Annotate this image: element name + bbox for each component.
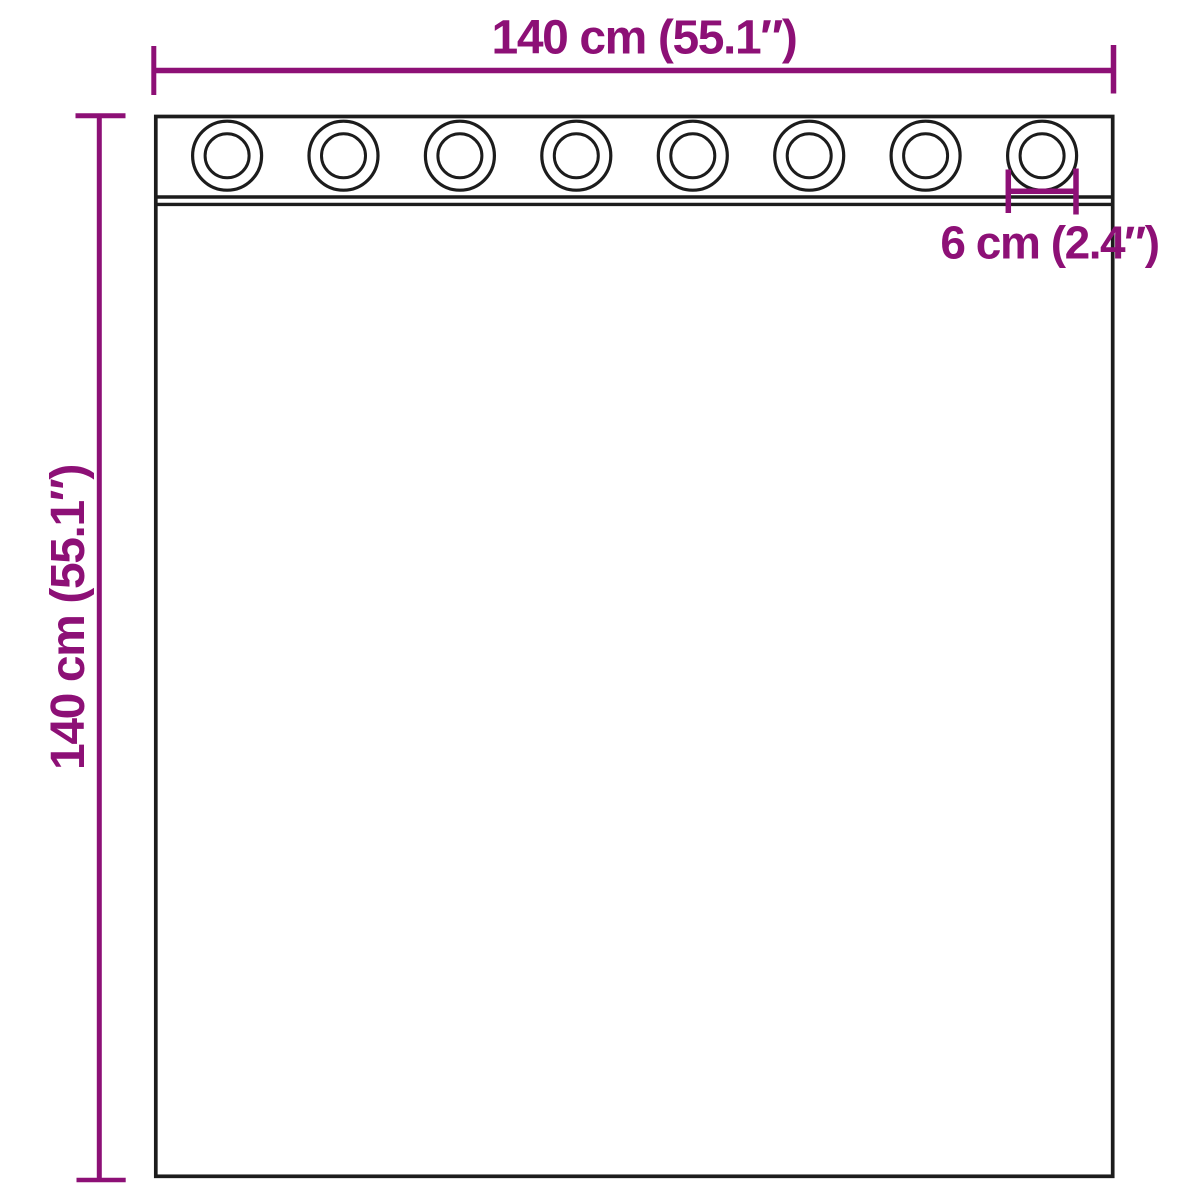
svg-text:140 cm (55.1″): 140 cm (55.1″) xyxy=(492,12,797,65)
svg-text:6 cm (2.4″): 6 cm (2.4″) xyxy=(940,217,1158,269)
svg-text:140 cm (55.1″): 140 cm (55.1″) xyxy=(42,465,95,770)
